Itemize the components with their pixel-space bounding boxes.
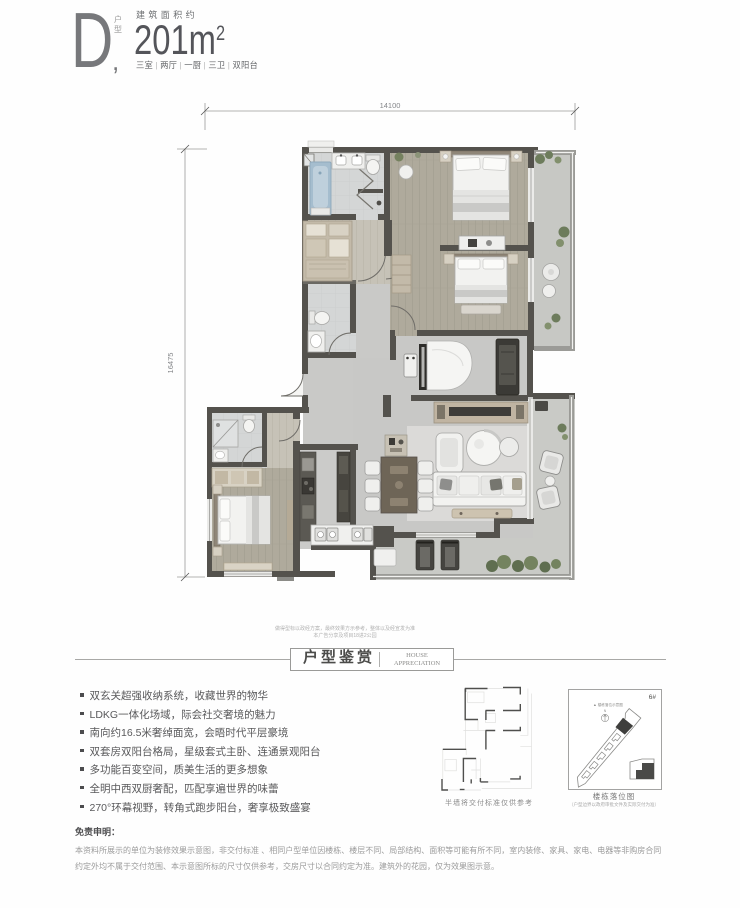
svg-text:6#: 6#	[649, 694, 657, 701]
svg-text:16475: 16475	[166, 353, 175, 374]
svg-text:▲ 楼栋落位示意图: ▲ 楼栋落位示意图	[593, 702, 623, 707]
svg-text:14100: 14100	[380, 101, 401, 110]
